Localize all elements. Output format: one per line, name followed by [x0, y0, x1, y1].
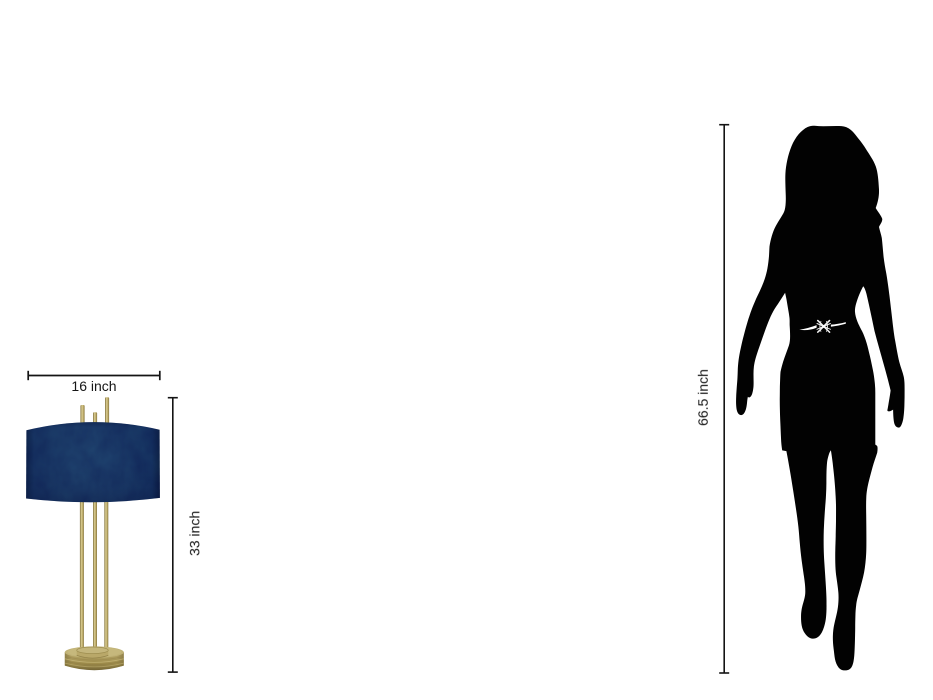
svg-text:33 inch: 33 inch — [186, 511, 202, 556]
svg-text:16 inch: 16 inch — [71, 378, 116, 394]
svg-text:66.5 inch: 66.5 inch — [695, 369, 711, 426]
